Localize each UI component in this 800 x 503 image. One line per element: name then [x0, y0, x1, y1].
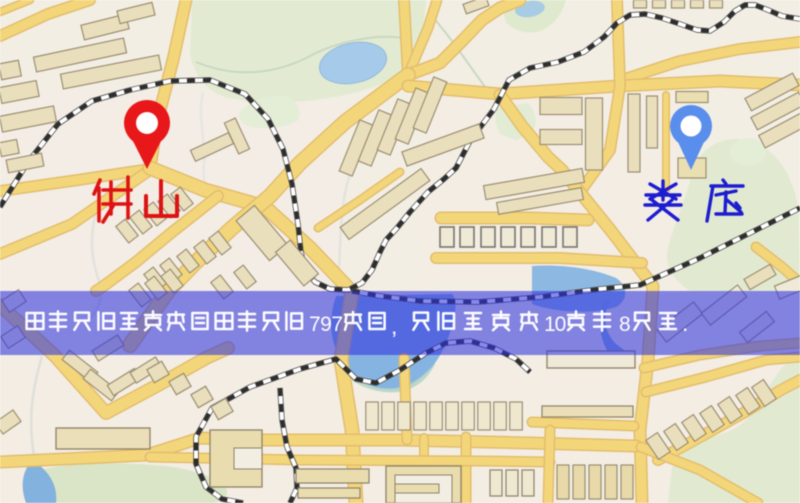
svg-text:797: 797: [309, 313, 343, 336]
svg-text:8: 8: [619, 313, 631, 336]
svg-text:.: .: [682, 310, 688, 336]
svg-text:,: ,: [391, 313, 397, 339]
svg-text:10: 10: [544, 313, 566, 336]
